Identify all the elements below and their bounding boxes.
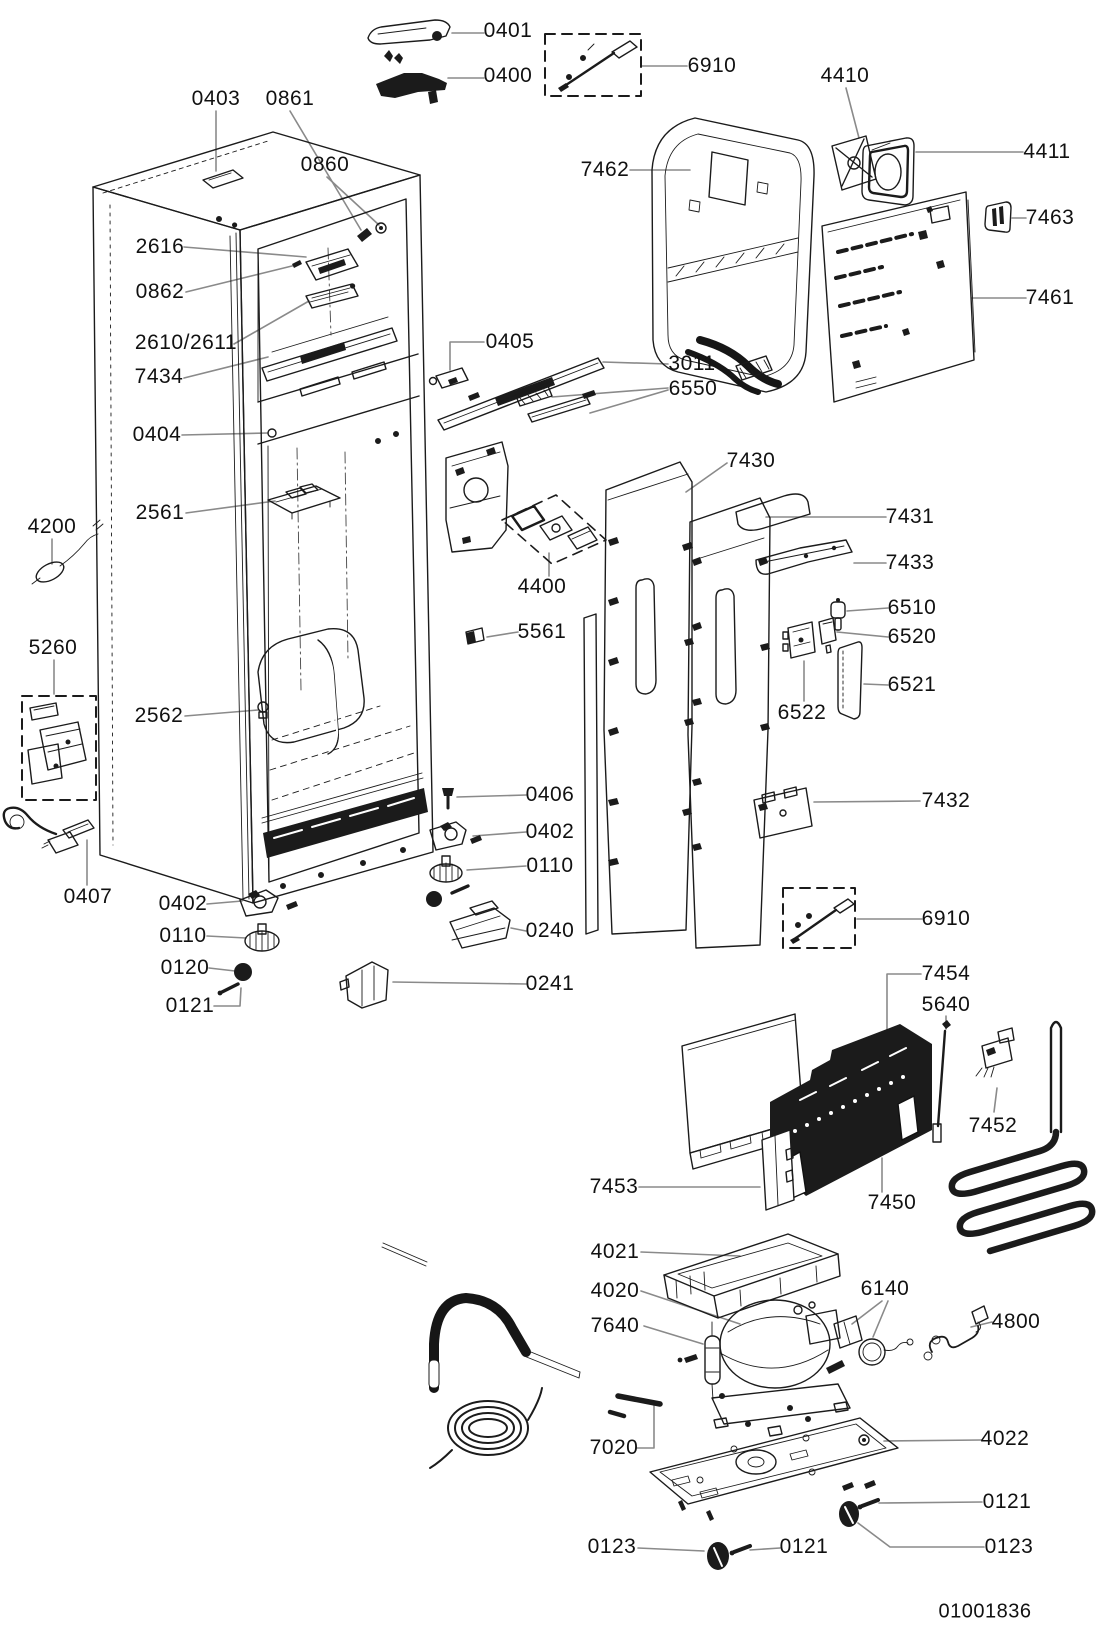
lamp-6510 bbox=[831, 598, 845, 630]
part-label-0121-right: 0121 bbox=[983, 1490, 1032, 1514]
lamp-holder-6520 bbox=[819, 618, 836, 653]
service-kit-box-top bbox=[545, 34, 641, 96]
part-label-0407: 0407 bbox=[64, 885, 113, 909]
part-label-7462: 7462 bbox=[581, 158, 630, 182]
screw-0121-left bbox=[218, 984, 238, 995]
cap-screw-right bbox=[426, 886, 468, 907]
part-label-7433: 7433 bbox=[886, 551, 935, 575]
bracket-0241 bbox=[340, 962, 388, 1008]
part-label-0110-right: 0110 bbox=[526, 854, 573, 878]
part-label-2562: 2562 bbox=[135, 704, 184, 728]
part-label-0401: 0401 bbox=[484, 19, 533, 43]
freezer-door-panel-7462 bbox=[652, 118, 814, 392]
part-label-6550: 6550 bbox=[669, 377, 718, 401]
part-label-7454: 7454 bbox=[922, 962, 971, 986]
duct-panel-a bbox=[604, 462, 694, 934]
part-label-7432: 7432 bbox=[922, 789, 971, 813]
screw-0121-right bbox=[858, 1500, 878, 1509]
service-kit-box-bottom bbox=[783, 888, 855, 948]
starter-relay-7452 bbox=[976, 1028, 1014, 1077]
part-label-0121-left: 0121 bbox=[166, 994, 215, 1018]
part-label-0861: 0861 bbox=[266, 87, 315, 111]
part-label-6910-top: 6910 bbox=[688, 54, 737, 78]
back-panel-7461 bbox=[822, 192, 975, 402]
part-label-6140: 6140 bbox=[861, 1277, 910, 1301]
wire-harness-4800 bbox=[924, 1306, 988, 1360]
compressor-4020 bbox=[678, 1300, 850, 1436]
part-label-2616: 2616 bbox=[136, 235, 185, 259]
air-damper-2616 bbox=[292, 249, 358, 289]
rail-2610-2611 bbox=[306, 284, 358, 308]
drier-filter-7640 bbox=[705, 1322, 720, 1400]
part-label-7450: 7450 bbox=[868, 1191, 917, 1215]
spacer-strip bbox=[584, 614, 598, 934]
relay-capacitor-6140 bbox=[834, 1316, 913, 1365]
part-drawing-0400 bbox=[376, 50, 447, 104]
part-label-5260: 5260 bbox=[29, 636, 78, 660]
part-label-4411: 4411 bbox=[1023, 140, 1070, 164]
part-label-7453: 7453 bbox=[590, 1175, 639, 1199]
part-label-7430: 7430 bbox=[727, 449, 776, 473]
bracket-0405 bbox=[430, 368, 481, 401]
part-label-7020: 7020 bbox=[590, 1436, 639, 1460]
part-label-0240: 0240 bbox=[526, 919, 575, 943]
power-cord-0407 bbox=[4, 808, 94, 853]
spacer-0240 bbox=[450, 901, 510, 948]
part-label-6520: 6520 bbox=[888, 625, 937, 649]
part-label-0123-right: 0123 bbox=[985, 1535, 1034, 1559]
part-label-4200: 4200 bbox=[28, 515, 77, 539]
part-label-0404: 0404 bbox=[133, 423, 182, 447]
thermostat-knob-7463 bbox=[985, 202, 1011, 232]
part-label-0110-left: 0110 bbox=[159, 924, 206, 948]
foot-0110-right bbox=[430, 856, 462, 882]
part-label-6910-bottom: 6910 bbox=[922, 907, 971, 931]
part-label-7434: 7434 bbox=[135, 365, 184, 389]
clip-5561 bbox=[466, 628, 484, 644]
part-label-5640: 5640 bbox=[922, 993, 971, 1017]
grommet-0123-left bbox=[707, 1542, 729, 1570]
parts-diagram-page: 0401 0400 6910 4410 7462 4411 7463 7461 … bbox=[0, 0, 1100, 1647]
screwdriver-icon bbox=[790, 899, 854, 944]
part-label-0402-right: 0402 bbox=[526, 820, 575, 844]
lamp-socket-6522 bbox=[783, 622, 815, 658]
sensor-kit-4400 bbox=[502, 495, 606, 564]
grommet-0123-right bbox=[839, 1501, 859, 1527]
part-label-0406: 0406 bbox=[526, 783, 575, 807]
condenser-7450 bbox=[770, 1024, 932, 1200]
document-code: 01001836 bbox=[939, 1601, 1032, 1624]
part-label-0402-left: 0402 bbox=[159, 892, 208, 916]
part-label-7431: 7431 bbox=[886, 505, 935, 529]
part-label-4800: 4800 bbox=[992, 1310, 1041, 1334]
part-label-0241: 0241 bbox=[526, 972, 575, 996]
control-unit-2561 bbox=[268, 484, 340, 519]
sensor-5640 bbox=[933, 1020, 951, 1142]
part-label-0862: 0862 bbox=[136, 280, 185, 304]
part-label-4022: 4022 bbox=[981, 1427, 1030, 1451]
part-label-0120: 0120 bbox=[161, 956, 210, 980]
part-label-4020: 4020 bbox=[591, 1279, 640, 1303]
part-label-4021: 4021 bbox=[591, 1240, 640, 1264]
part-label-7452: 7452 bbox=[969, 1114, 1018, 1138]
part-label-2610-2611: 2610/2611 bbox=[135, 331, 237, 355]
part-label-7461: 7461 bbox=[1026, 286, 1075, 310]
part-label-0121-mid: 0121 bbox=[780, 1535, 829, 1559]
lamp-assembly-5260 bbox=[22, 696, 96, 800]
capillary-coil bbox=[430, 1388, 542, 1468]
part-label-7640: 7640 bbox=[591, 1314, 640, 1338]
condenser-bracket-7453 bbox=[762, 1130, 794, 1210]
screwdriver-icon bbox=[558, 41, 637, 92]
part-label-0403: 0403 bbox=[192, 87, 241, 111]
cover-plate-7432 bbox=[754, 787, 812, 838]
part-label-4400: 4400 bbox=[518, 575, 567, 599]
part-label-5561: 5561 bbox=[518, 620, 567, 644]
insulated-tube bbox=[382, 1243, 580, 1388]
cap-0120 bbox=[234, 963, 252, 981]
lamp-cover-6521 bbox=[838, 642, 862, 719]
fan-4410 bbox=[832, 136, 890, 190]
foot-0110-left bbox=[245, 924, 279, 951]
pin-0406 bbox=[442, 788, 454, 808]
screws-7020 bbox=[610, 1396, 660, 1416]
compressor-tray-4021 bbox=[664, 1234, 840, 1318]
part-label-6510: 6510 bbox=[888, 596, 937, 620]
part-label-6522: 6522 bbox=[778, 701, 827, 725]
hinge-0402-left bbox=[240, 890, 298, 916]
part-label-7463: 7463 bbox=[1026, 206, 1075, 230]
part-label-4410: 4410 bbox=[821, 64, 870, 88]
part-label-0123-left: 0123 bbox=[588, 1535, 637, 1559]
part-label-2561: 2561 bbox=[136, 501, 185, 525]
part-drawing-0401 bbox=[368, 20, 450, 44]
fan-grille-4411 bbox=[862, 138, 914, 205]
part-label-0400: 0400 bbox=[484, 64, 533, 88]
duct-bracket-7430 bbox=[446, 442, 508, 552]
part-label-0860: 0860 bbox=[301, 153, 350, 177]
part-label-3011: 3011 bbox=[668, 352, 715, 376]
part-label-0405: 0405 bbox=[486, 330, 535, 354]
part-label-6521: 6521 bbox=[888, 673, 937, 697]
screw-0121-mid bbox=[730, 1546, 750, 1555]
